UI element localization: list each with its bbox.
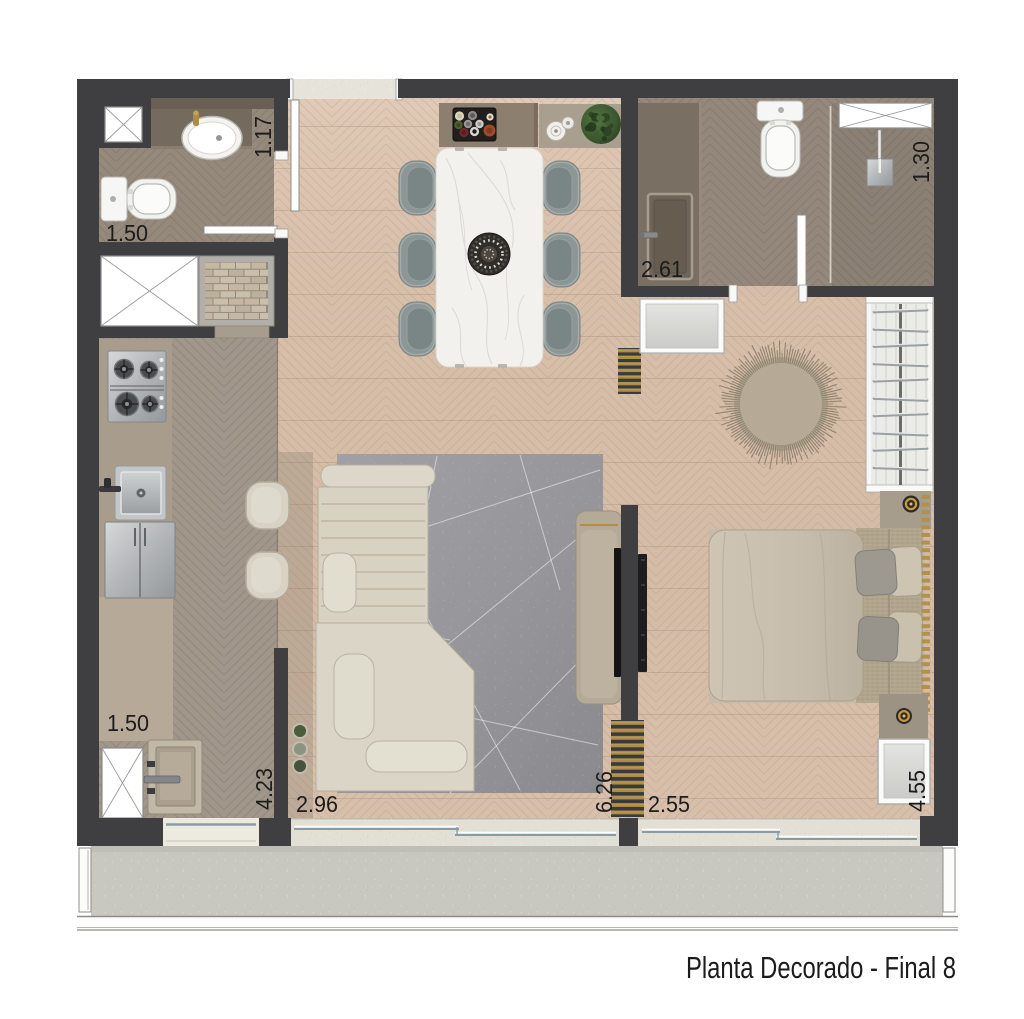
svg-text:4.23: 4.23 [251,768,277,810]
svg-text:1.50: 1.50 [107,710,149,736]
svg-text:1.17: 1.17 [250,116,276,158]
svg-text:1.30: 1.30 [908,141,934,183]
svg-text:2.96: 2.96 [296,791,338,817]
svg-text:2.61: 2.61 [641,256,683,282]
svg-text:6.26: 6.26 [591,771,617,813]
svg-text:4.55: 4.55 [904,770,930,812]
svg-text:Planta Decorado - Final 8: Planta Decorado - Final 8 [686,951,956,985]
svg-text:2.55: 2.55 [648,791,690,817]
